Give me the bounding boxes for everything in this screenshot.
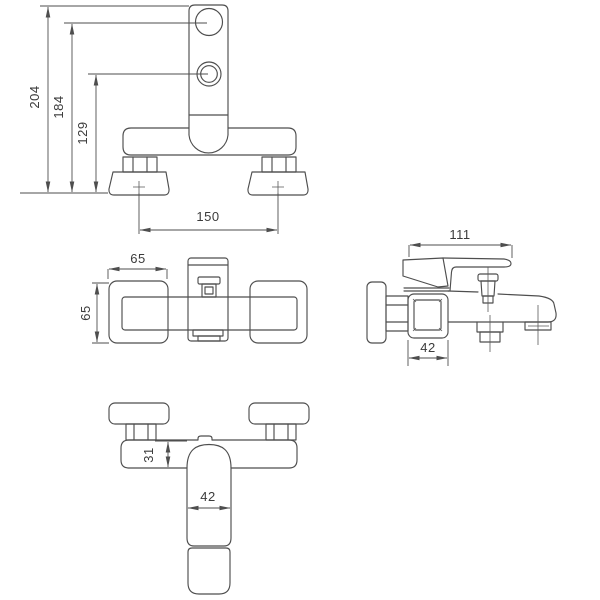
foot-center-mark-right	[272, 181, 284, 193]
dim-65d-label: 65	[78, 305, 93, 320]
dim-42-bottom-label: 42	[200, 489, 215, 504]
dimension-129: 129	[75, 74, 208, 192]
flange-plate-left	[109, 281, 168, 343]
lever-base-wedge	[403, 258, 448, 287]
dimension-204: 204	[20, 6, 189, 193]
spout-steps-plan	[193, 330, 223, 341]
dimension-31: 31	[141, 441, 187, 467]
foot-center-mark-left	[133, 181, 145, 193]
spout-tab	[198, 436, 212, 440]
flange-plate-right	[250, 281, 307, 343]
flange-bottom-right	[249, 403, 309, 424]
cartridge-face	[414, 300, 441, 330]
spout-dome	[187, 445, 231, 469]
technical-drawing: 204 184 129 150	[0, 0, 600, 600]
dimension-150: 150	[139, 193, 278, 234]
aerator-outlet	[525, 305, 551, 345]
side-view: 111 42	[367, 227, 556, 366]
dim-42-side-label: 42	[420, 340, 435, 355]
dimension-42-bottom: 42	[188, 489, 230, 508]
hex-nut-bottom-right	[266, 424, 296, 440]
hex-nut-right	[262, 157, 296, 172]
lever-blade	[443, 258, 511, 291]
wall-flange-side	[367, 282, 386, 343]
handle-column-plan	[188, 258, 228, 341]
spout-body-arm	[448, 291, 556, 322]
dim-129-label: 129	[75, 121, 90, 144]
flange-bottom-left	[109, 403, 169, 424]
diverter-knob-plan	[198, 277, 220, 297]
dim-150-label: 150	[196, 209, 219, 224]
dim-31-label: 31	[141, 447, 156, 462]
bottom-view: 31 42	[109, 403, 309, 594]
dim-111-label: 111	[449, 227, 470, 242]
dimension-111: 111	[409, 227, 512, 258]
hex-nut-side	[386, 296, 408, 331]
dim-204-label: 204	[27, 85, 42, 108]
body-bar-plan	[122, 297, 297, 330]
hex-nut-left	[123, 157, 157, 172]
spout-segment-1	[187, 468, 231, 546]
dim-65w-label: 65	[130, 251, 145, 266]
body-bar	[123, 128, 296, 155]
drawing-canvas: 204 184 129 150	[0, 0, 600, 600]
diverter-knob-side	[478, 267, 498, 312]
dimension-65-width: 65	[108, 251, 167, 279]
dimension-42-side: 42	[408, 340, 448, 366]
column-u-bottom	[189, 135, 228, 153]
plan-view: 65 65	[78, 251, 307, 343]
lever-neck-lines	[404, 288, 449, 291]
front-view: 204 184 129 150	[20, 5, 308, 234]
hex-nut-bottom-left	[126, 424, 156, 440]
diverter-cup-side	[477, 315, 503, 352]
cartridge-corner-ticks	[413, 299, 442, 331]
handle-circle	[196, 9, 223, 36]
dim-184-label: 184	[51, 95, 66, 118]
spout-segment-2	[188, 548, 230, 594]
dimension-65-depth: 65	[78, 283, 109, 343]
dimension-184: 184	[51, 23, 207, 192]
